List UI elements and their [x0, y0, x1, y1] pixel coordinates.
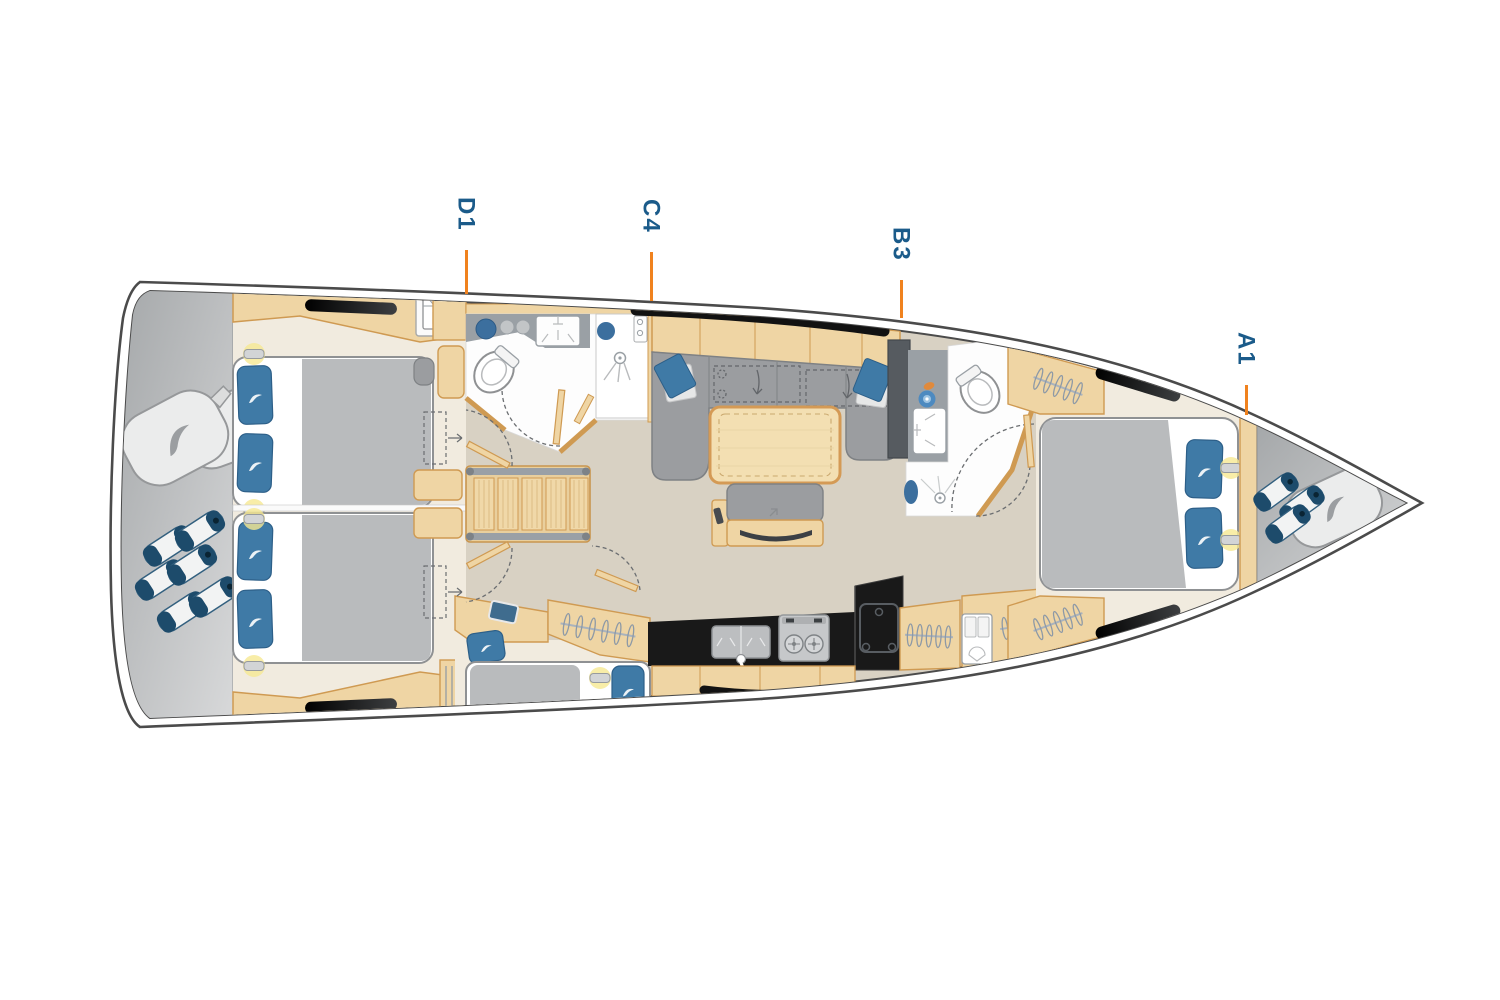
cabin-label-d1: D1: [452, 197, 480, 232]
leader-line-d1: [465, 250, 468, 294]
aft-port-double-bed: [233, 343, 433, 521]
pillow: [237, 521, 273, 580]
bath-rug: [919, 391, 936, 408]
leader-line-a1: [1245, 385, 1248, 415]
cabin-label-b3: B3: [887, 227, 915, 262]
sink-icon: [913, 408, 946, 454]
shower-rug: [597, 322, 615, 340]
yacht-deck-plan: D1 C4 B3 A1 const data = JSON.parse(docu…: [0, 0, 1500, 1000]
pillow: [237, 365, 273, 424]
aft-stbd-double-bed: [233, 508, 433, 677]
reading-light-icon: [243, 655, 265, 677]
pillow: [1185, 439, 1223, 498]
leader-line-b3: [900, 280, 903, 318]
salon-table: [710, 407, 840, 483]
stove-icon: [779, 615, 829, 661]
bow-locker: [1251, 412, 1425, 594]
dresser: [962, 614, 992, 664]
reading-light-icon: [243, 343, 265, 365]
pillow: [237, 433, 273, 492]
tv-bench: [712, 484, 823, 546]
shower-rug: [904, 480, 918, 504]
deck-plan-drawing: [0, 0, 1500, 1000]
reading-light-icon: [1220, 529, 1242, 551]
reading-light-icon: [589, 667, 611, 689]
sink-icon: [536, 316, 580, 346]
shower-shelf: [634, 316, 647, 342]
cabin-label-a1: A1: [1232, 332, 1260, 367]
cabin-label-c4: C4: [637, 199, 665, 234]
bath-tall-cabinet: [888, 340, 910, 458]
forward-cabin: [1008, 346, 1257, 662]
reading-light-icon: [243, 508, 265, 530]
reading-light-icon: [1220, 457, 1242, 479]
forward-double-bed: [1040, 418, 1242, 590]
pillow: [237, 589, 273, 648]
galley-counter-return: [855, 576, 903, 670]
leader-line-c4: [650, 252, 653, 301]
